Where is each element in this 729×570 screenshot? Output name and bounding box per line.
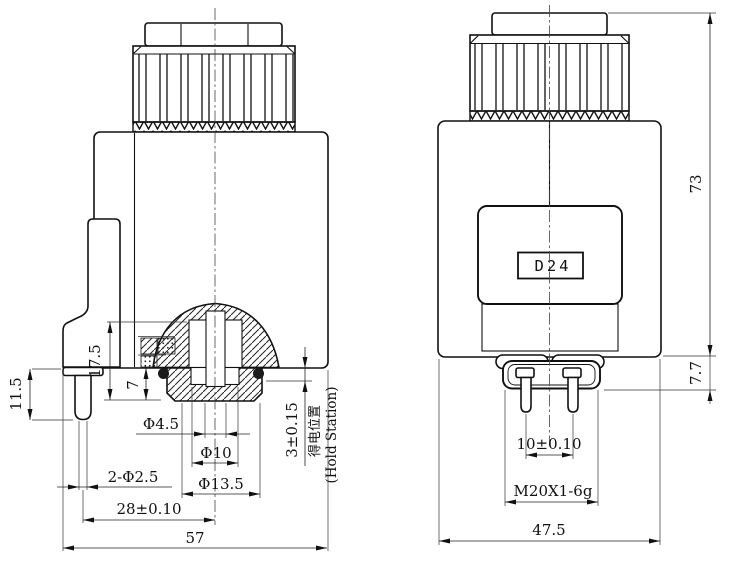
pin-collar-right [563, 368, 581, 378]
dim-text: Φ10 [200, 444, 231, 462]
label-hold-station-cn: 得电位置 [307, 405, 323, 457]
dim-text: 57 [185, 529, 204, 547]
dim-text: 7.7 [687, 361, 705, 385]
o-ring-right [253, 368, 264, 379]
knurl-band [133, 122, 295, 132]
dim-text: 10±0.10 [516, 435, 581, 453]
dim-bore-dia-4-5: Φ4.5 [136, 415, 250, 437]
knob-top [145, 23, 282, 46]
dim-text: Φ4.5 [143, 415, 179, 433]
pin-collar-left [516, 368, 534, 378]
dim-text: Φ13.5 [198, 475, 244, 493]
dim-text: 73 [687, 174, 705, 193]
dim-text: 47.5 [532, 521, 565, 539]
terminal-pin [75, 376, 91, 420]
center-bore [206, 311, 225, 387]
dim-text: 2-Φ2.5 [108, 468, 159, 486]
dim-text: 28±0.10 [116, 500, 181, 518]
dim-overall-width-57: 57 [63, 529, 327, 551]
dim-text: M20X1-6g [514, 482, 593, 500]
dim-overall-height-73: 73 [687, 13, 713, 356]
dim-text: 17.5 [86, 344, 104, 377]
technical-drawing: 11.5 17.5 7 3±0.15 得电位置 (Hold Station) Φ… [0, 0, 729, 570]
dim-plug-protrusion-7: 7 [124, 368, 149, 400]
side-view: D24 73 [438, 5, 716, 545]
label-hold-station-en: (Hold Station) [324, 387, 340, 484]
knurled-knob [133, 23, 295, 132]
dim-terminal-height-7-7: 7.7 [687, 361, 713, 401]
terminal-pin-left [521, 378, 531, 413]
label-voltage: D24 [535, 257, 572, 275]
dim-text: 11.5 [7, 377, 25, 410]
dim-text: 3±0.15 [283, 402, 301, 458]
dim-thread-m20: M20X1-6g [505, 482, 598, 505]
dim-body-width-47-5: 47.5 [439, 521, 660, 544]
drawing-canvas: 11.5 17.5 7 3±0.15 得电位置 (Hold Station) Φ… [0, 0, 729, 570]
dim-pin-dia-2-2-5: 2-Φ2.5 [57, 468, 172, 490]
dim-pin-to-center-28: 28±0.10 [83, 500, 215, 523]
dim-plug-dia-13-5: Φ13.5 [182, 475, 260, 497]
terminal-pin-right [568, 378, 578, 413]
front-view: 11.5 17.5 7 3±0.15 得电位置 (Hold Station) Φ… [7, 8, 340, 551]
dim-text: 7 [124, 380, 142, 390]
dim-pin-length-11-5: 11.5 [7, 369, 33, 420]
terminal-assembly [496, 355, 604, 412]
o-ring-left [158, 368, 169, 379]
